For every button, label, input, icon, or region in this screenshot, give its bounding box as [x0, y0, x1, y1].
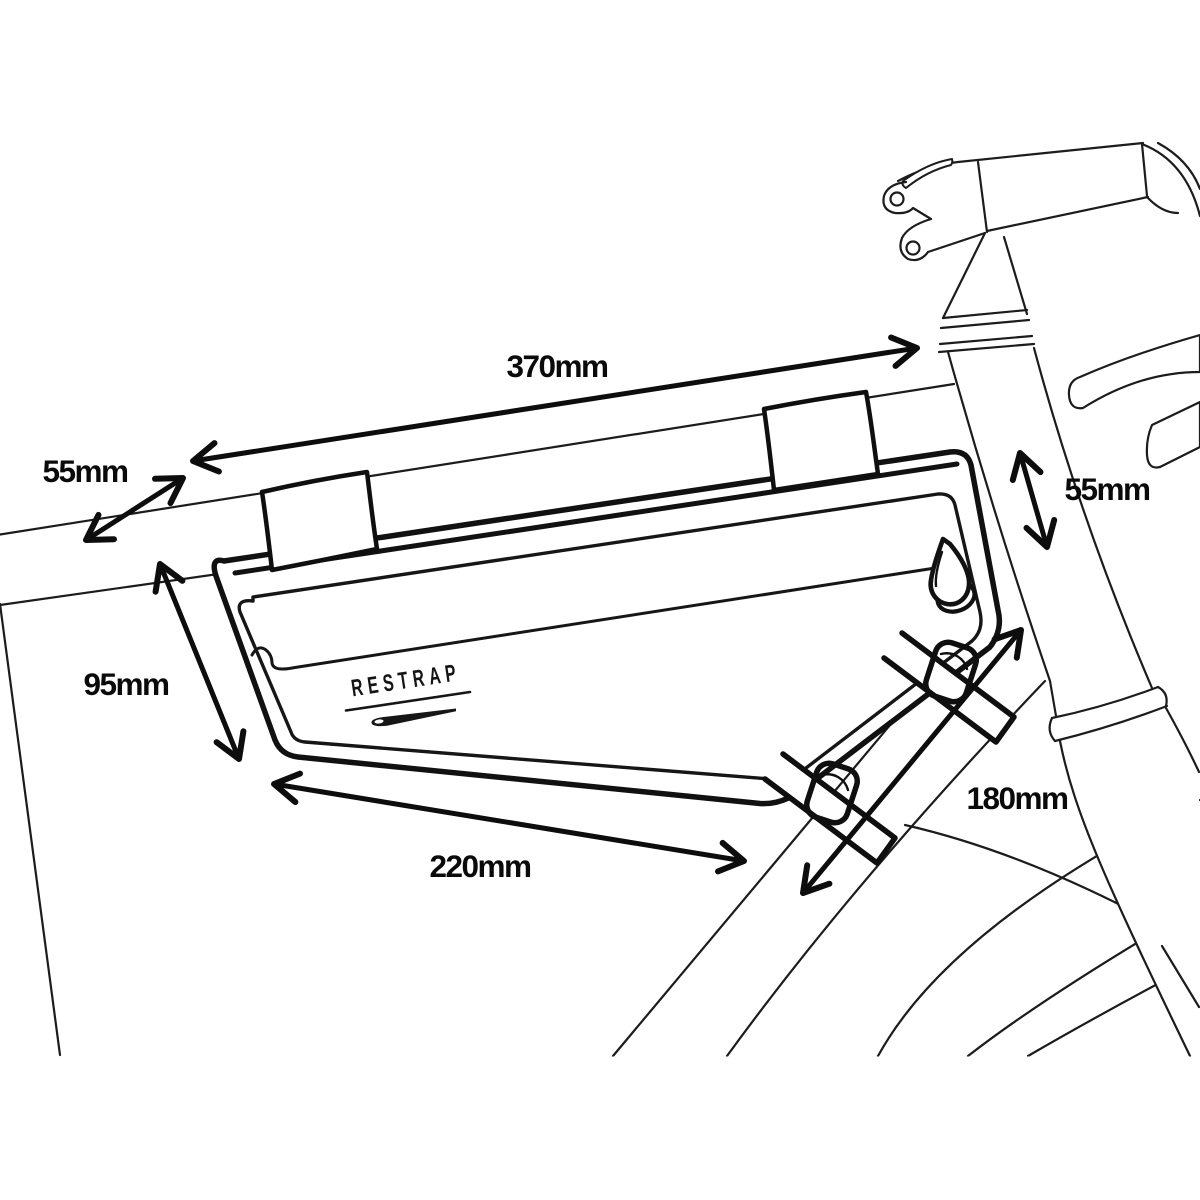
svg-text:370mm: 370mm: [506, 348, 608, 384]
svg-text:55mm: 55mm: [42, 453, 128, 489]
svg-text:95mm: 95mm: [83, 666, 169, 702]
svg-text:55mm: 55mm: [1064, 471, 1150, 507]
svg-text:220mm: 220mm: [429, 848, 531, 884]
svg-text:180mm: 180mm: [966, 780, 1068, 816]
